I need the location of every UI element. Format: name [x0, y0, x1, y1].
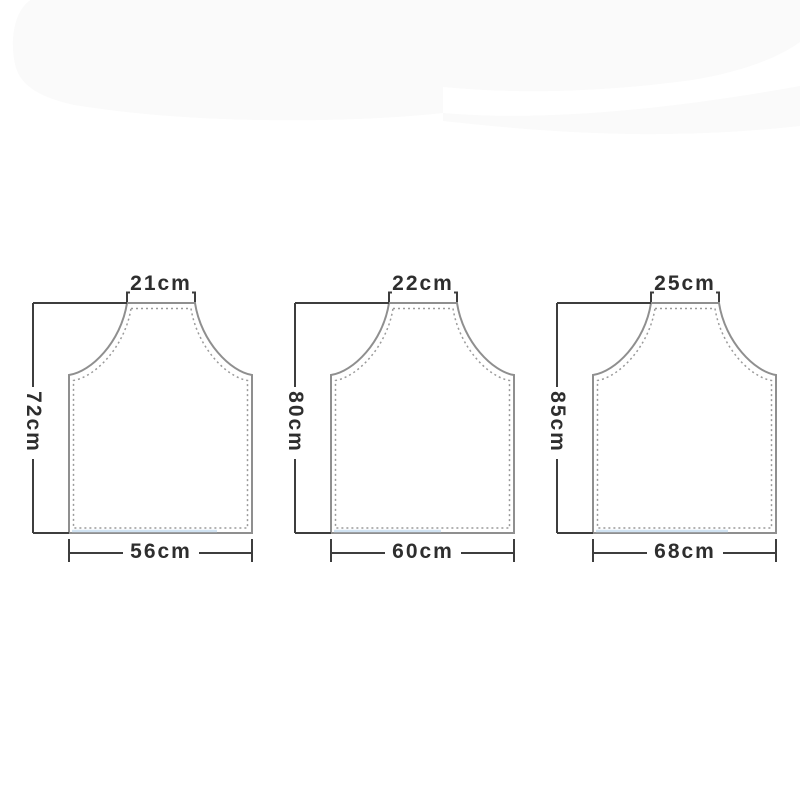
apron-3-bottom-width-label: 68cm — [645, 541, 725, 562]
apron-1-bottom-width-label: 56cm — [121, 541, 201, 562]
apron-3-height-label: 85cm — [545, 385, 569, 459]
apron-outline — [69, 303, 252, 533]
apron-shape-2 — [281, 270, 531, 570]
apron-3-top-width-label: 25cm — [645, 273, 725, 294]
apron-outline — [331, 303, 514, 533]
apron-diagram-2: 22cm 80cm 60cm — [281, 270, 531, 570]
apron-outline — [593, 303, 776, 533]
background-artifact — [0, 0, 800, 150]
apron-2-height-label: 80cm — [283, 385, 307, 459]
apron-2-bottom-width-label: 60cm — [383, 541, 463, 562]
apron-size-chart: 21cm 72cm 56cm — [0, 0, 800, 800]
apron-shape-1 — [19, 270, 269, 570]
apron-diagram-3: 25cm 85cm 68cm — [543, 270, 793, 570]
apron-1-top-width-label: 21cm — [121, 273, 201, 294]
apron-diagram-1: 21cm 72cm 56cm — [19, 270, 269, 570]
apron-shape-3 — [543, 270, 793, 570]
apron-1-height-label: 72cm — [21, 385, 45, 459]
apron-2-top-width-label: 22cm — [383, 273, 463, 294]
